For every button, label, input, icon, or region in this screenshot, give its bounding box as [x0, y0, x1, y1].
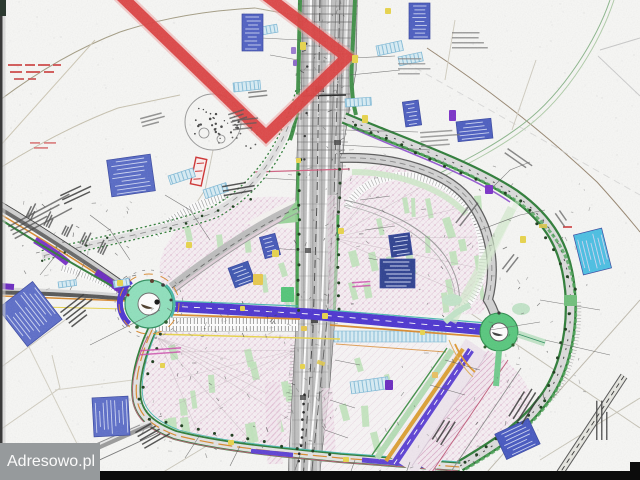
svg-text:Adresowo.pl: Adresowo.pl [7, 453, 95, 470]
